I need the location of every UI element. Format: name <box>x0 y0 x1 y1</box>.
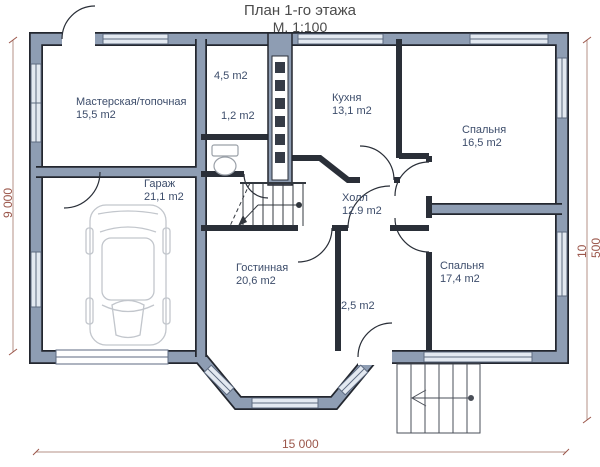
car-icon <box>86 205 170 345</box>
floor-plan: План 1-го этажа М. 1:100 <box>0 0 600 467</box>
kitchen-door-arc <box>360 146 394 180</box>
dimension-left: 9 000 <box>1 188 15 218</box>
room-label-vestibule: 2,5 m2 <box>341 300 375 313</box>
room-label-bedroom-2: Спальня17,4 m2 <box>440 260 484 286</box>
exterior-walls <box>36 39 562 403</box>
room-label-storage: 4,5 m2 <box>214 70 248 83</box>
living-room-door-arc <box>298 228 332 262</box>
room-label-workshop: Мастерская/топочная15,5 m2 <box>76 96 186 122</box>
floor-plan-drawing <box>0 0 600 467</box>
chimney-flues-icon <box>268 33 292 185</box>
room-label-garage: Гараж21,1 m2 <box>144 178 184 204</box>
bedroom2-door-arc <box>395 218 429 252</box>
room-label-bedroom-1: Спальня16,5 m2 <box>462 124 506 150</box>
dimension-right: 10 500 <box>575 233 600 258</box>
staircase-icon <box>230 183 306 226</box>
room-label-wc: 1,2 m2 <box>221 110 255 123</box>
room-label-kitchen: Кухня13,1 m2 <box>332 92 372 118</box>
dimension-bottom: 15 000 <box>282 437 319 451</box>
toilet-icon <box>212 145 238 175</box>
room-label-living-room: Гостинная20,6 m2 <box>236 262 288 288</box>
room-label-hall: Холл12.9 m2 <box>342 192 382 218</box>
bedroom1-door-arc <box>395 162 429 196</box>
entry-steps-icon <box>397 364 480 433</box>
wc-door-arc <box>244 174 268 198</box>
